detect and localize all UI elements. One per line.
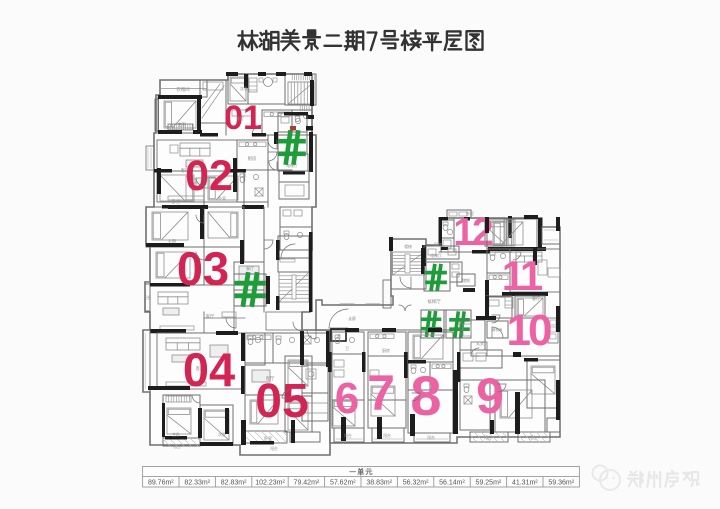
svg-text:主卧: 主卧 — [172, 431, 180, 437]
svg-text:102.23m²: 102.23m² — [255, 480, 285, 487]
svg-text:38.83m²: 38.83m² — [366, 480, 392, 487]
svg-text:走廊: 走廊 — [348, 316, 356, 321]
svg-text:阳台: 阳台 — [344, 433, 352, 438]
svg-text:阳台: 阳台 — [383, 433, 391, 438]
svg-text:阳台: 阳台 — [144, 295, 152, 300]
svg-text:阳台: 阳台 — [427, 435, 435, 440]
svg-text:41.31m²: 41.31m² — [512, 480, 538, 487]
svg-text:客厅: 客厅 — [532, 295, 540, 301]
svg-text:6: 6 — [335, 374, 359, 423]
svg-text:电梯厅: 电梯厅 — [430, 253, 442, 258]
svg-text:89.76m²: 89.76m² — [148, 480, 174, 487]
svg-text:82.33m²: 82.33m² — [184, 480, 210, 487]
svg-text:9: 9 — [476, 368, 504, 424]
svg-text:卧室: 卧室 — [466, 210, 474, 216]
svg-text:储物: 储物 — [462, 278, 470, 283]
svg-text:阳台: 阳台 — [270, 446, 278, 451]
svg-text:阳台: 阳台 — [529, 435, 537, 440]
svg-text:次卧: 次卧 — [240, 85, 248, 91]
svg-text:客厅: 客厅 — [236, 115, 244, 121]
svg-text:11: 11 — [502, 252, 543, 299]
svg-text:厨房: 厨房 — [382, 347, 390, 353]
svg-text:次卧: 次卧 — [218, 431, 226, 437]
svg-text:82.83m²: 82.83m² — [221, 480, 247, 487]
svg-text:玄关: 玄关 — [476, 340, 484, 346]
svg-text:59.25m²: 59.25m² — [476, 480, 502, 487]
svg-text:79.42m²: 79.42m² — [294, 480, 320, 487]
svg-text:04: 04 — [183, 343, 235, 396]
svg-text:56.14m²: 56.14m² — [439, 480, 465, 487]
svg-text:楼梯: 楼梯 — [404, 244, 412, 249]
svg-text:05: 05 — [255, 375, 308, 428]
svg-text:厨房: 厨房 — [248, 155, 257, 162]
svg-text:候梯厅: 候梯厅 — [427, 298, 441, 305]
svg-text:卧室: 卧室 — [172, 198, 181, 205]
svg-text:7: 7 — [367, 365, 395, 421]
svg-text:57.62m²: 57.62m² — [330, 480, 356, 487]
svg-text:02: 02 — [185, 152, 233, 200]
svg-text:8: 8 — [410, 364, 441, 427]
svg-text:10: 10 — [507, 306, 551, 355]
svg-text:阳台: 阳台 — [173, 444, 181, 449]
svg-text:卧室: 卧室 — [218, 195, 226, 201]
svg-text:衣帽间: 衣帽间 — [176, 86, 189, 93]
svg-text:03: 03 — [177, 242, 229, 295]
svg-text:餐厅: 餐厅 — [246, 265, 254, 271]
svg-text:56.32m²: 56.32m² — [403, 480, 429, 487]
svg-text:厨房: 厨房 — [434, 241, 442, 247]
svg-text:阳台: 阳台 — [484, 435, 492, 440]
svg-text:客厅: 客厅 — [206, 313, 215, 320]
svg-text:卫: 卫 — [345, 346, 349, 351]
svg-text:卧室: 卧室 — [264, 435, 272, 441]
svg-text:59.36m²: 59.36m² — [548, 480, 574, 487]
